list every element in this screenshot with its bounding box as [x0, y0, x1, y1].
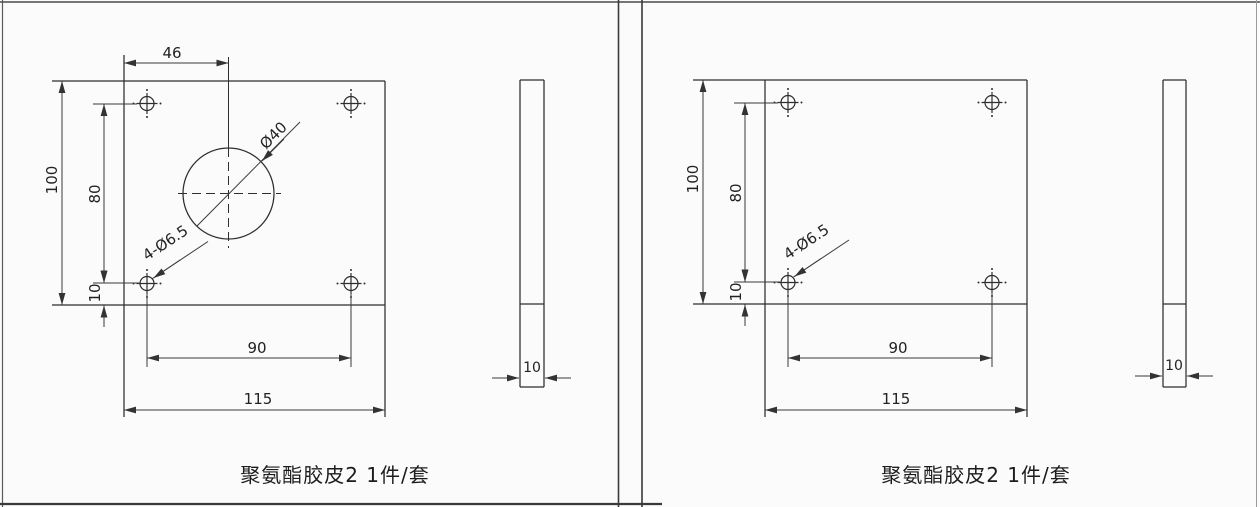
dim-label-dia40: Ø40 — [256, 118, 291, 153]
panel-right: 100 80 10 90 115 4-Ø6.5 — [684, 80, 1213, 487]
dim-label-80: 80 — [727, 183, 745, 202]
drawing-sheet: 46 100 80 10 90 115 Ø40 — [0, 0, 1260, 507]
dim-label-holes: 4-Ø6.5 — [780, 220, 832, 263]
side-view-1 — [520, 80, 544, 387]
corner-hole-top-right — [978, 88, 1007, 117]
part-caption-2: 聚氨酯胶皮2 1件/套 — [881, 463, 1071, 487]
side-dimension-1: 10 — [492, 360, 571, 378]
panel-left: 46 100 80 10 90 115 Ø40 — [43, 44, 571, 487]
side-dimension-2: 10 — [1135, 358, 1213, 376]
leader-arrow-holes — [154, 260, 181, 278]
side-view-2 — [1163, 80, 1186, 387]
dim-label-thickness: 10 — [1165, 358, 1183, 374]
part-caption-1: 聚氨酯胶皮2 1件/套 — [240, 463, 430, 487]
sheet-borders — [0, 0, 1260, 507]
dim-label-10: 10 — [727, 282, 745, 301]
dim-label-90: 90 — [888, 339, 907, 357]
dim-label-115: 115 — [244, 390, 273, 408]
dim-label-100: 100 — [43, 166, 61, 195]
dim-label-10: 10 — [86, 283, 104, 302]
dim-label-90: 90 — [247, 339, 266, 357]
dim-label-115: 115 — [882, 390, 911, 408]
front-view-plate-2 — [693, 80, 1027, 417]
cad-drawing-canvas: 46 100 80 10 90 115 Ø40 — [0, 0, 1260, 507]
dimensions-2: 100 80 10 90 115 4-Ø6.5 — [684, 80, 1027, 410]
dim-label-80: 80 — [86, 184, 104, 203]
dim-label-46: 46 — [162, 44, 181, 62]
leader-arrow-holes — [795, 259, 822, 277]
front-view-plate-1 — [52, 55, 385, 417]
dimensions-1: 46 100 80 10 90 115 Ø40 — [43, 44, 385, 410]
dim-label-thickness: 10 — [523, 360, 541, 376]
leader-line-dia40 — [197, 122, 300, 226]
corner-hole-top-right — [337, 89, 366, 118]
dim-label-100: 100 — [684, 165, 702, 194]
